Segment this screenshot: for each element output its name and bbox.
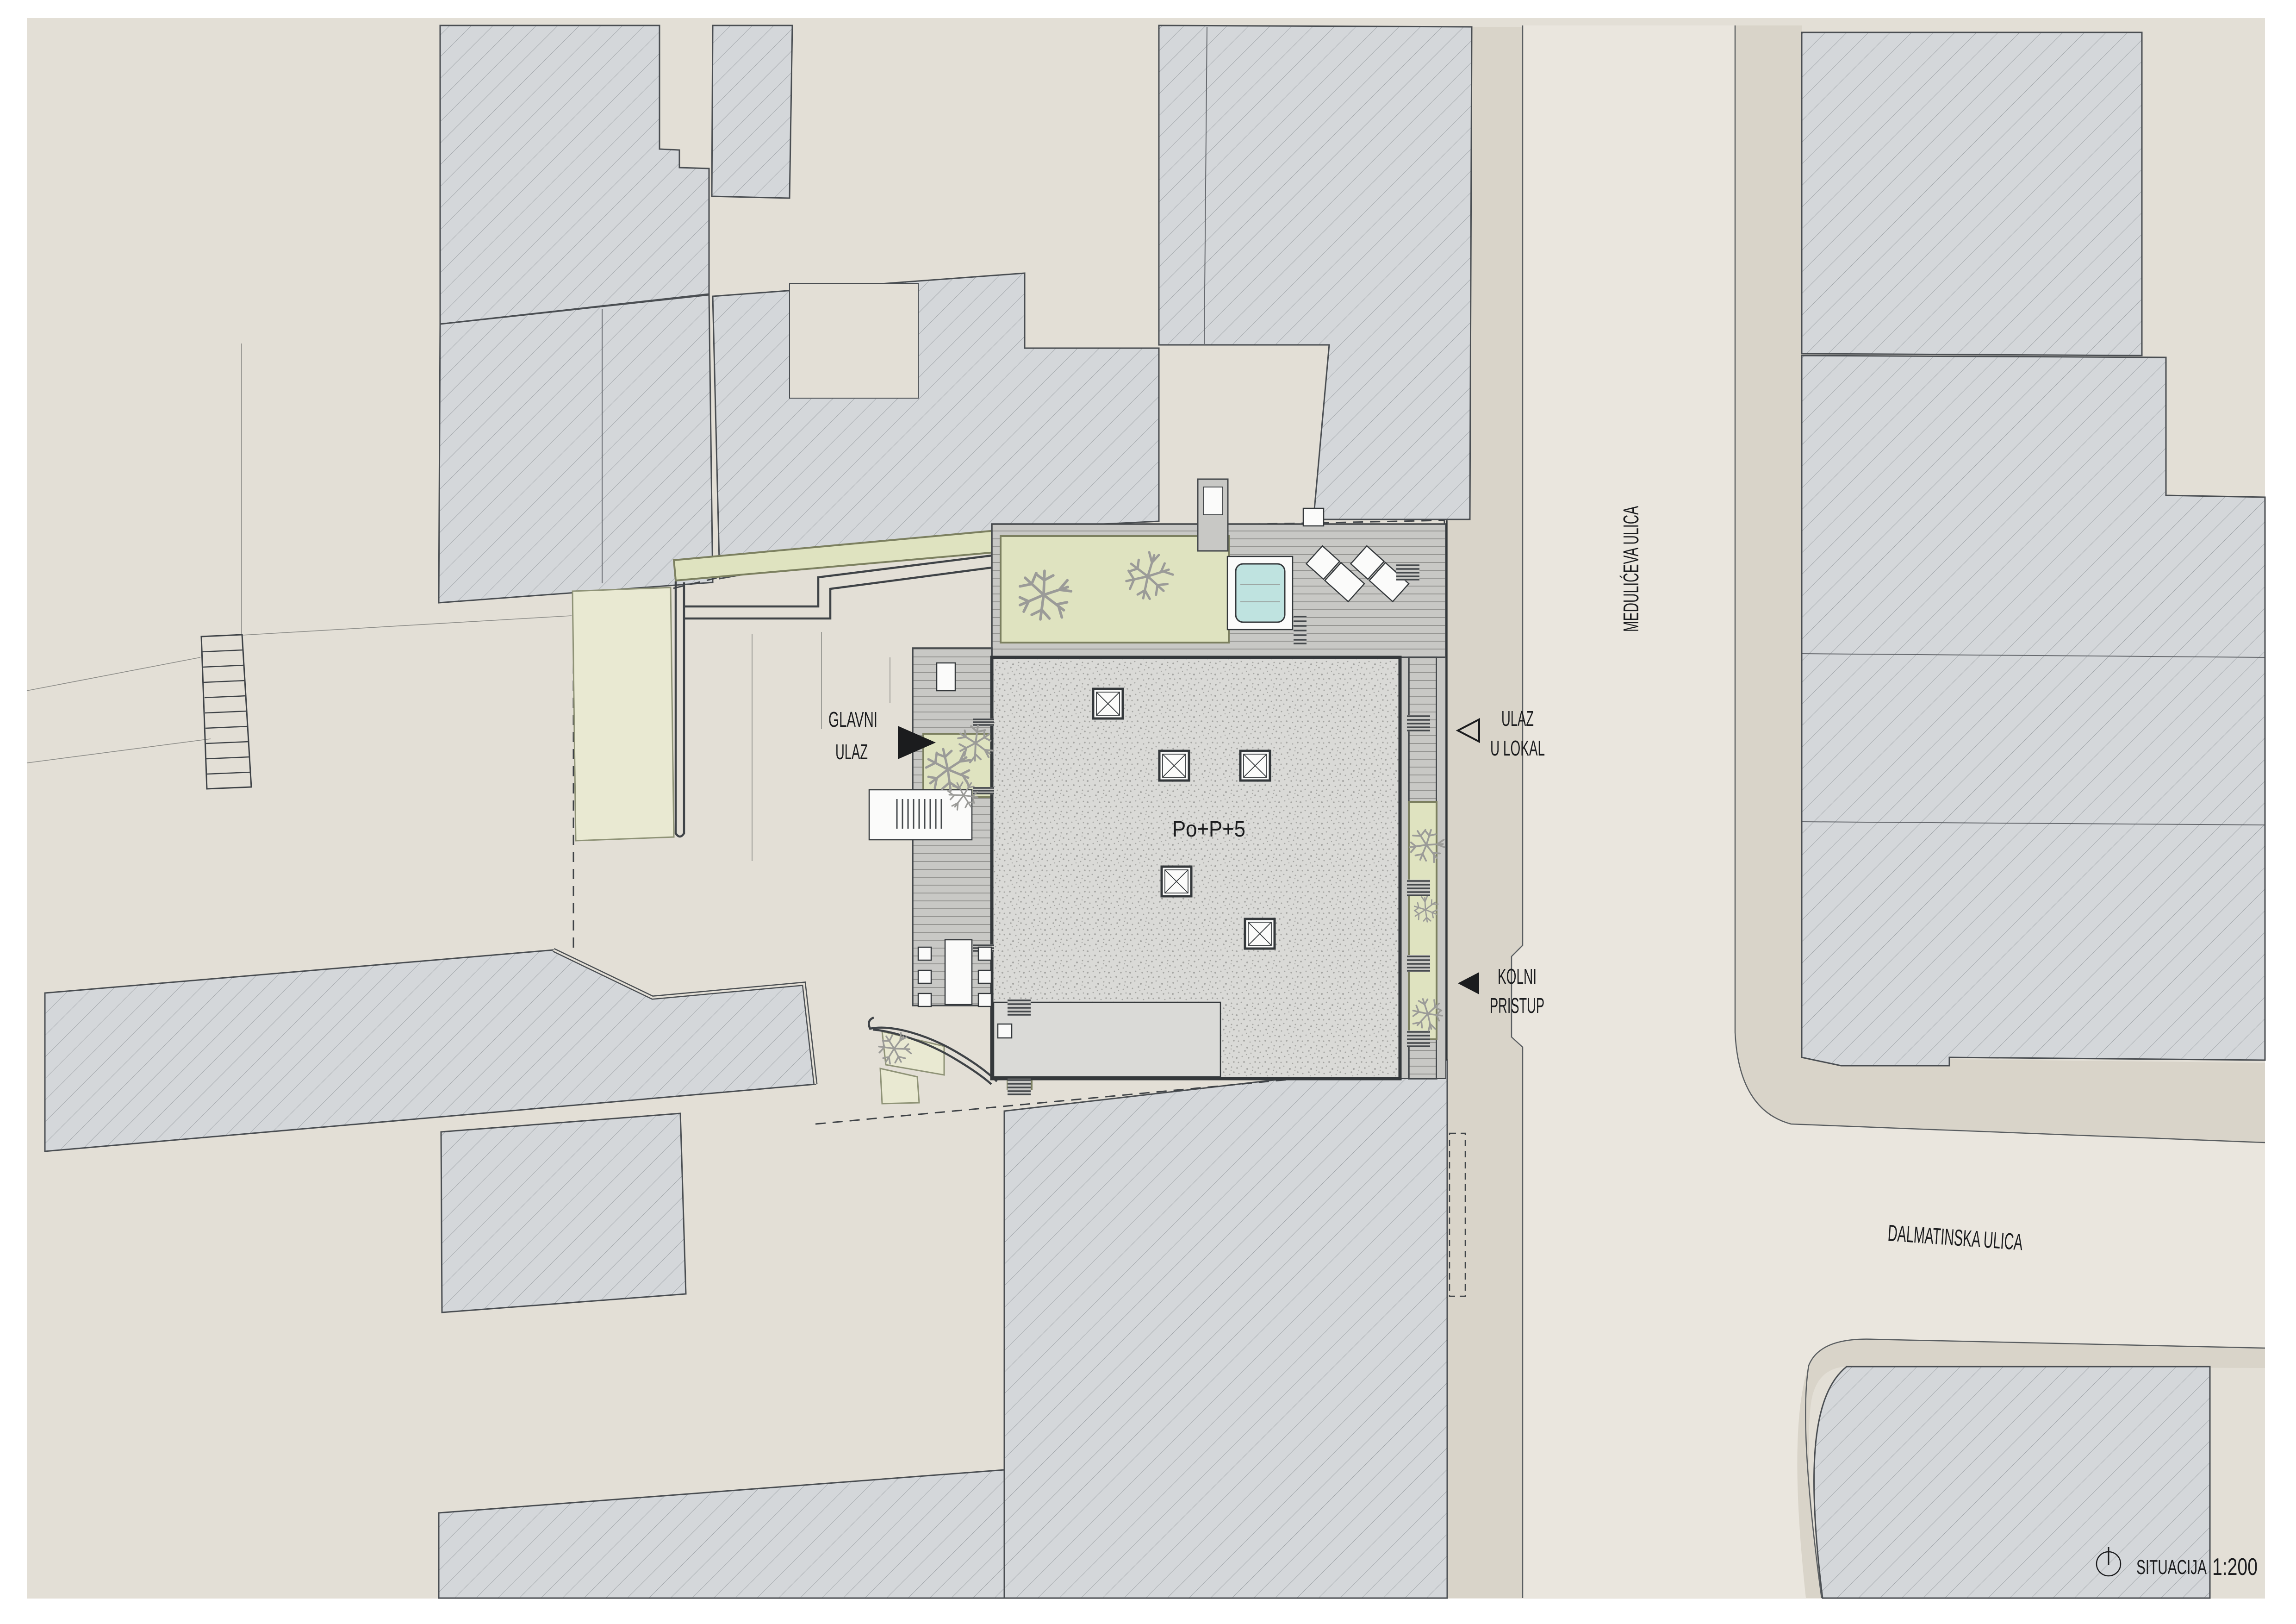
street-name-meduliceva: MEDULIĆEVA ULICA — [1619, 506, 1643, 632]
deck-bench — [973, 718, 994, 726]
west-door-marker — [998, 1024, 1012, 1038]
main-building: Po+P+5 — [992, 657, 1400, 1079]
local-entrance-line2: U LOKAL — [1490, 736, 1545, 760]
building-height-label: Po+P+5 — [1172, 817, 1245, 842]
vehicle-access-line1: KOLNI — [1498, 964, 1537, 988]
block-east-upper — [1802, 32, 2142, 356]
main-entrance-line1: GLAVNI — [828, 707, 877, 731]
block-northwest-lower — [439, 295, 713, 603]
planter-bench — [1008, 1079, 1031, 1095]
skylight — [1162, 867, 1191, 896]
planter-bench — [1008, 999, 1031, 1016]
pool-steps — [1294, 615, 1307, 644]
drawing-title: SITUACIJA — [2136, 1556, 2207, 1579]
entry-marker — [937, 663, 955, 691]
block-southwest-mid — [441, 1113, 686, 1312]
deck-bench — [1407, 715, 1430, 731]
skylight — [1093, 689, 1123, 718]
deck-bench — [1407, 955, 1430, 972]
deck-bench — [1407, 1031, 1430, 1047]
skylight — [1240, 751, 1270, 781]
roof-chimney — [1198, 479, 1228, 551]
skylight — [1159, 751, 1189, 781]
skylight — [1245, 919, 1275, 949]
deck-bench — [1407, 880, 1430, 896]
lawn-panel — [572, 587, 674, 841]
site-plan-sheet: Po+P+5 — [0, 0, 2296, 1624]
table-and-chairs — [918, 940, 991, 1006]
drawing-scale: 1:200 — [2212, 1554, 2258, 1580]
terrace-door-marker — [1303, 508, 1324, 526]
pool — [1236, 564, 1285, 622]
courtyard-notch — [790, 283, 918, 398]
sidewalk-southwest — [1448, 1137, 1523, 1598]
block-south — [1004, 1060, 1447, 1598]
cellar-grate — [869, 790, 972, 840]
local-entrance-line1: ULAZ — [1501, 706, 1534, 731]
terrace-bench — [1396, 564, 1419, 581]
block-north-small — [712, 25, 792, 198]
main-entrance-line2: ULAZ — [835, 740, 868, 764]
planter-terrace-north — [1001, 536, 1229, 643]
vehicle-access-line2: PRISTUP — [1490, 993, 1544, 1018]
